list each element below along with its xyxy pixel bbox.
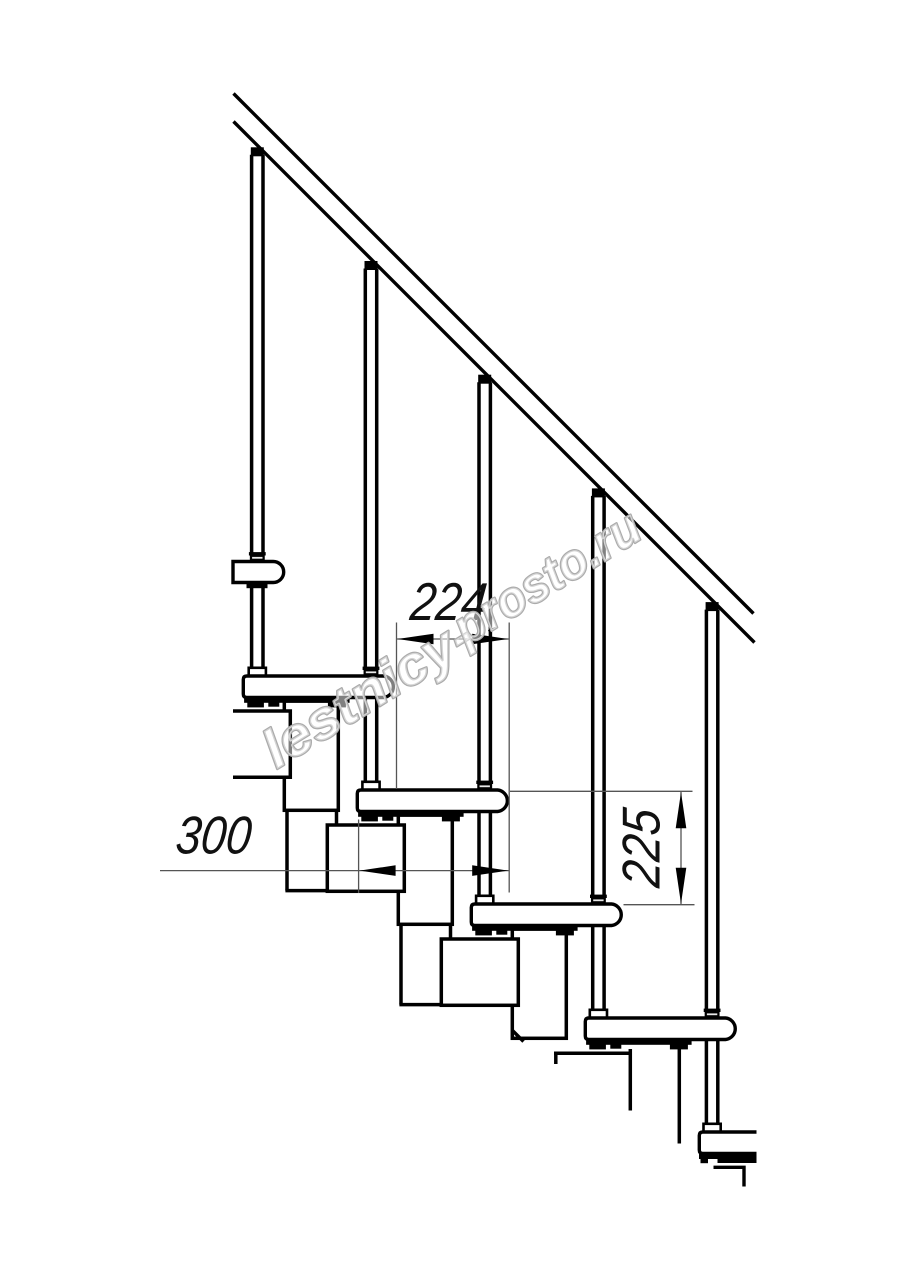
- svg-text:225: 225: [612, 805, 672, 890]
- svg-text:300: 300: [173, 806, 254, 866]
